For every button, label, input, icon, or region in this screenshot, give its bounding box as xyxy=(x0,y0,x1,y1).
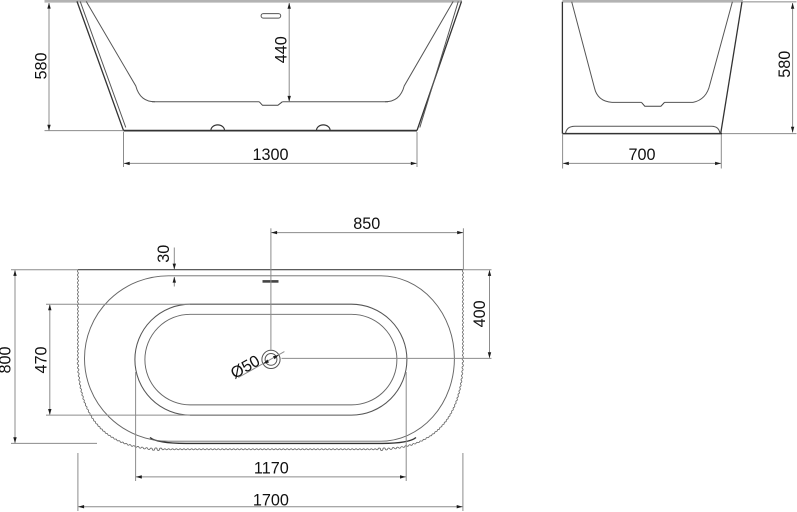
svg-text:1170: 1170 xyxy=(254,459,289,477)
svg-text:1300: 1300 xyxy=(252,146,288,164)
svg-text:Ø50: Ø50 xyxy=(228,352,264,383)
svg-text:470: 470 xyxy=(33,346,51,373)
svg-text:580: 580 xyxy=(32,52,50,79)
svg-text:400: 400 xyxy=(471,300,489,327)
svg-text:800: 800 xyxy=(0,346,15,373)
svg-text:30: 30 xyxy=(155,245,173,263)
svg-text:580: 580 xyxy=(776,51,794,78)
svg-text:850: 850 xyxy=(353,215,380,233)
svg-text:440: 440 xyxy=(272,36,290,63)
svg-text:700: 700 xyxy=(628,146,655,164)
svg-text:1700: 1700 xyxy=(253,491,289,509)
